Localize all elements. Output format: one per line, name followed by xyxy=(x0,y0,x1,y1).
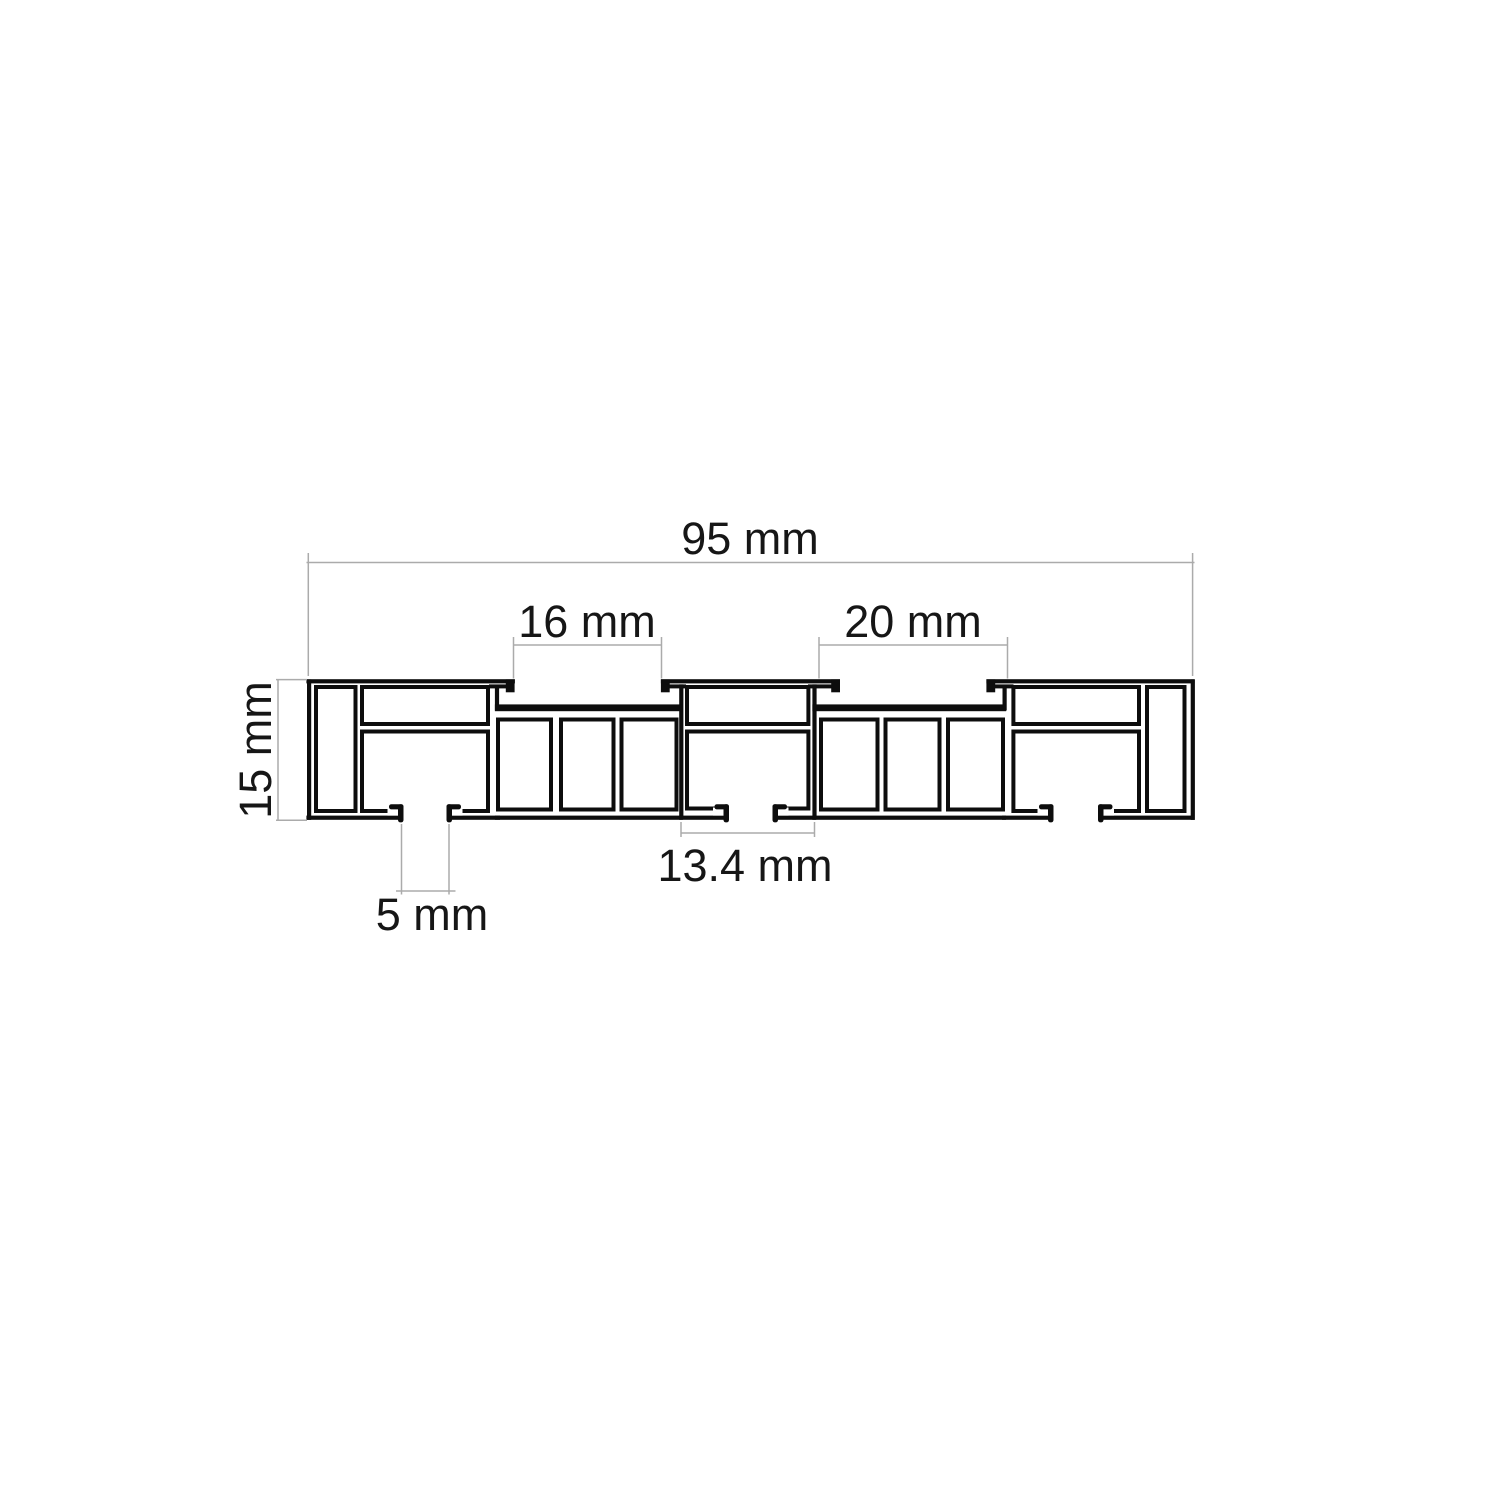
svg-text:5 mm: 5 mm xyxy=(376,889,489,940)
svg-text:15 mm: 15 mm xyxy=(230,681,281,819)
svg-text:16 mm: 16 mm xyxy=(518,596,656,647)
svg-text:20 mm: 20 mm xyxy=(844,596,982,647)
svg-text:13.4 mm: 13.4 mm xyxy=(657,840,832,891)
svg-text:95 mm: 95 mm xyxy=(681,513,819,564)
